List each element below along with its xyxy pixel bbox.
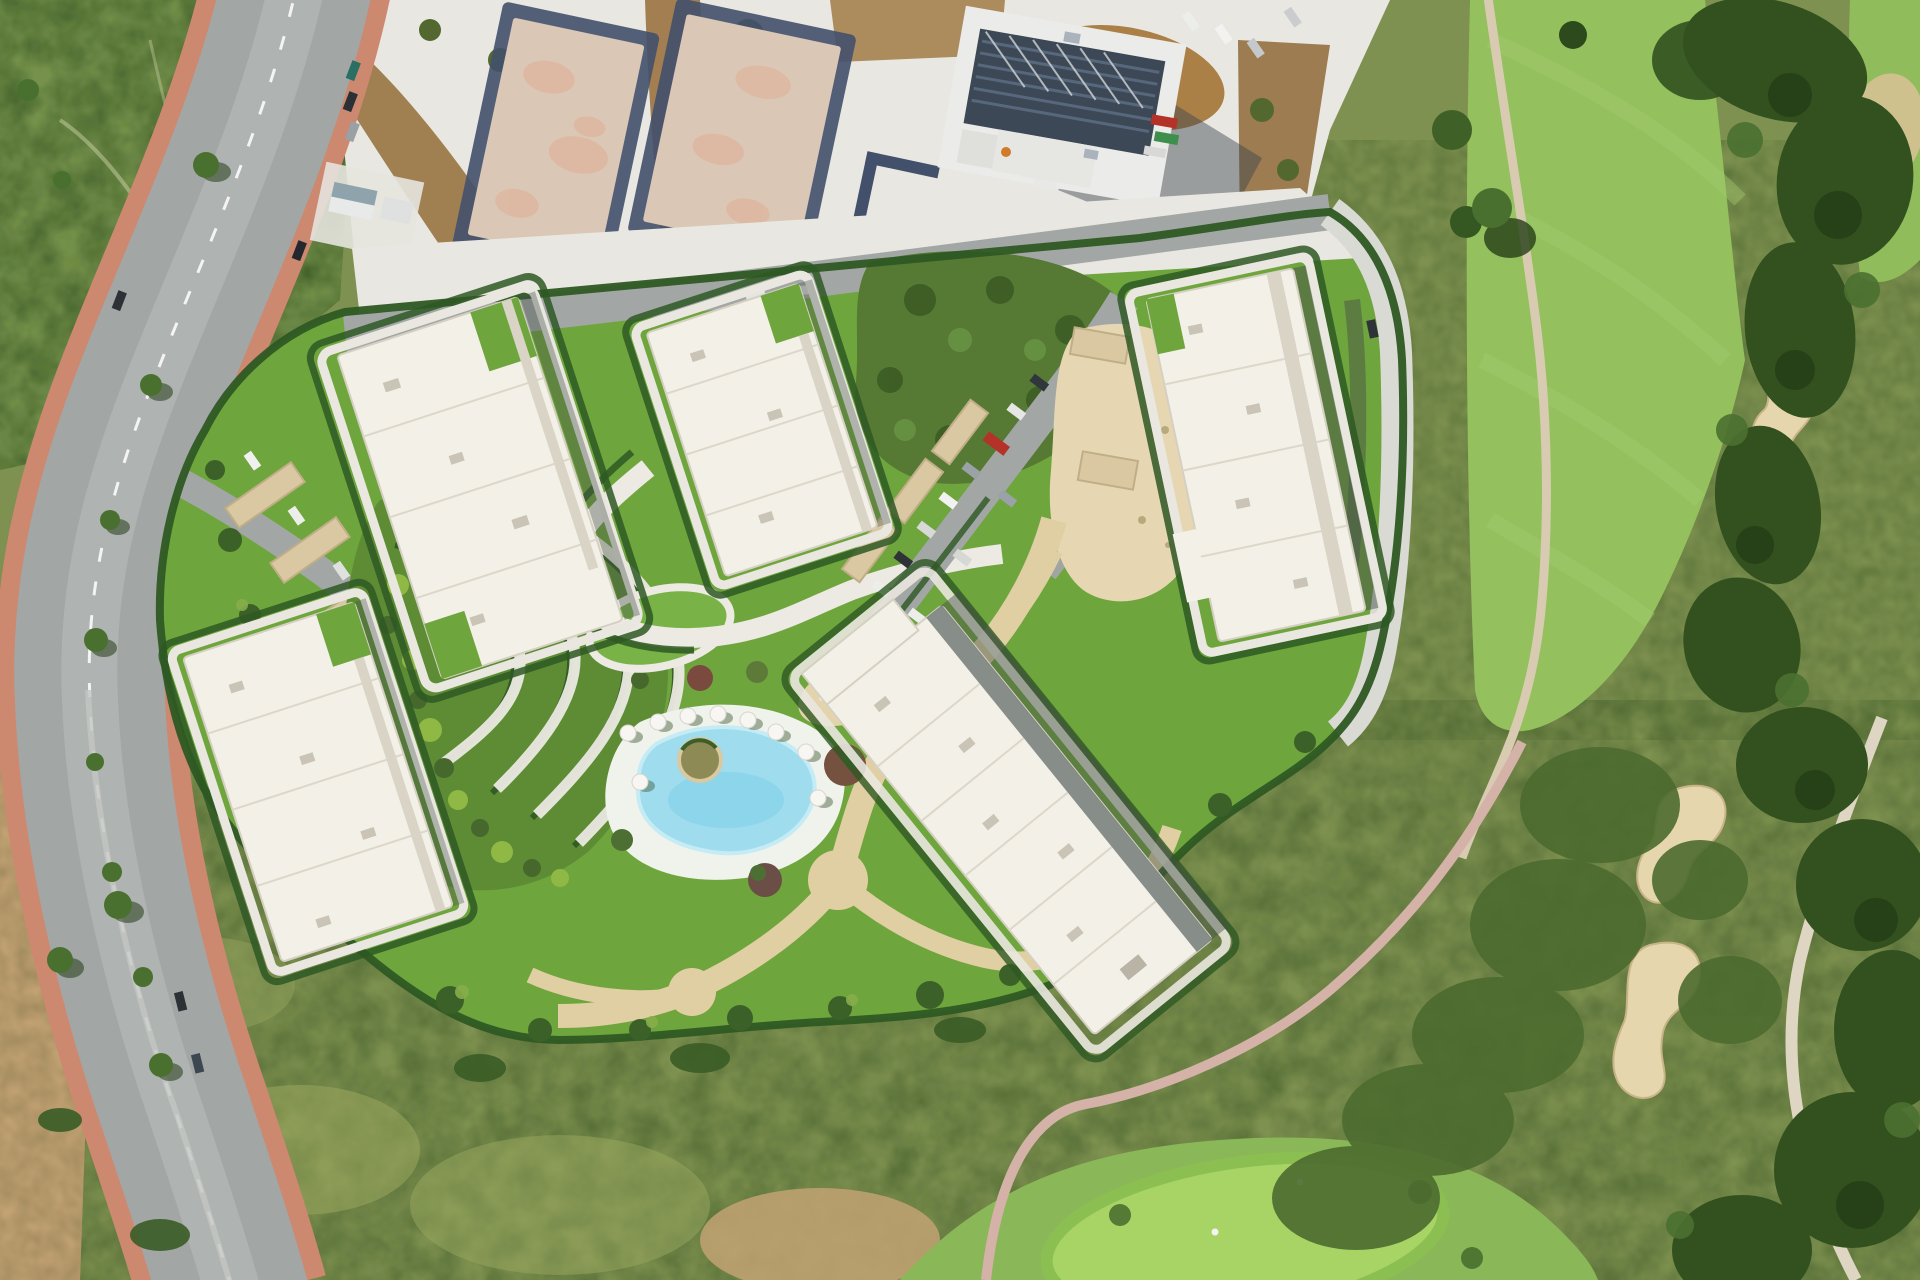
road-cars: [112, 60, 361, 1074]
west-carports: [225, 462, 394, 638]
roadside-office: [310, 162, 424, 261]
boundary-trees: [205, 460, 1316, 1042]
swimming-pool: [638, 727, 815, 853]
parking-cars: [871, 374, 1092, 626]
building-1: [306, 272, 654, 703]
access-road-east: [1330, 212, 1397, 734]
car-b3-drive: [1366, 319, 1379, 338]
playground: [789, 645, 915, 740]
golf-course: [900, 0, 1920, 1280]
bunker-mid-right: [1637, 786, 1725, 903]
sand-bunkers: [1613, 367, 1814, 1098]
construction-building: [937, 6, 1262, 252]
perimeter-road: [17, 0, 424, 1280]
construction-slab-b: [627, 0, 857, 271]
roadside-dirt: [0, 690, 100, 1280]
central-parking: [842, 300, 1124, 648]
golf-cart-path-right: [1791, 718, 1882, 1280]
access-road-north: [345, 212, 1330, 334]
road-trees: [17, 79, 231, 1081]
terraced-gardens: [341, 494, 679, 890]
golf-walk-path: [986, 742, 1522, 1280]
woods-patch: [855, 251, 1130, 484]
boundary-hedge: [160, 212, 1403, 1040]
foundation-walls: [850, 151, 942, 249]
promenade-path: [570, 468, 1002, 638]
construction-zone: [315, 0, 1390, 315]
base-terrain: [0, 0, 1920, 1280]
building-3: [1118, 246, 1393, 663]
complex-grounds: [160, 212, 1403, 1040]
plaza-tan: [1050, 324, 1209, 601]
garden-trees: [379, 552, 649, 887]
pool-island-planter: [679, 739, 721, 781]
aerial-map-canvas: [0, 0, 1920, 1280]
pool-shrubs: [611, 661, 866, 897]
west-carport-cars: [244, 451, 351, 581]
bunker-lower-right: [1613, 943, 1700, 1098]
golf-tree-band: [1652, 0, 1920, 1280]
pool-area: [605, 661, 866, 897]
plaza-pergolas: [1070, 327, 1138, 489]
construction-parked-cars: [1182, 7, 1302, 59]
path-trees: [1432, 21, 1587, 258]
aerial-map: [0, 0, 1920, 1280]
residential-complex: [158, 188, 1403, 1065]
pool-deck: [605, 705, 844, 880]
south-accents: [38, 1017, 986, 1251]
bunker-top-right: [1752, 367, 1815, 464]
building-5: [779, 555, 1244, 1066]
golf-fairway: [1467, 0, 1745, 731]
golf-cart-path: [1462, 0, 1546, 858]
pool-parasols: [620, 706, 833, 808]
access-road-cars: [746, 285, 811, 301]
sandy-paths: [530, 520, 1172, 1016]
construction-slab-a: [452, 1, 660, 279]
west-drive: [158, 470, 458, 656]
building-2: [622, 261, 902, 599]
playground-items: [819, 681, 883, 704]
putting-green: [1037, 1135, 1454, 1280]
oval-lawn: [581, 574, 739, 683]
building-4: [158, 579, 477, 986]
red-car: [369, 568, 397, 592]
